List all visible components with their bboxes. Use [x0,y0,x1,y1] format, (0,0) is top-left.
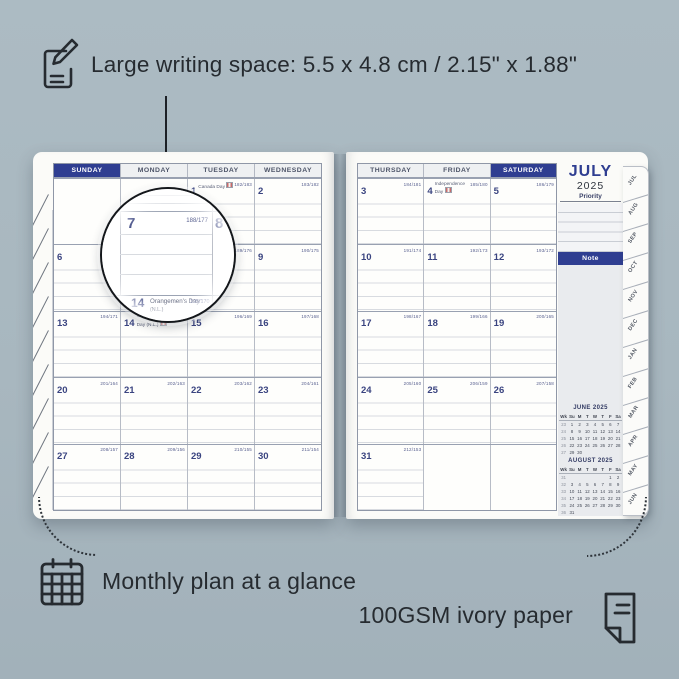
weekday-header: TUESDAY [188,164,255,177]
weekday-header: SUNDAY [54,164,121,177]
product-image-canvas: { "colors": {"background":"#a8b7bf","nav… [0,0,679,679]
day-cell: 5186/179 [491,179,556,244]
weekday-header: FRIDAY [424,164,490,177]
day-cell: 4Independence Day185/180 [424,179,490,244]
feature-text-monthly-plan: Monthly plan at a glance [102,568,356,595]
priority-label: Priority [560,193,621,202]
priority-ruled-lines [558,203,623,253]
day-cell: 3184/181 [358,179,424,244]
day-cell: 13194/171 [54,312,121,377]
magnified-holiday-note: (N.L.) [150,307,163,313]
day-cell: 20201/164 [54,378,121,443]
sidebar-month-title: JULY [558,163,623,181]
day-cell: 22203/162 [188,378,255,443]
sidebar-year: 2025 [558,180,623,192]
day-cell: 12193/172 [491,245,556,310]
pencil-note-icon [39,35,79,91]
planner-sidebar: JULY 2025 Priority Note JUNE 2025WkSuMTW… [558,163,623,516]
day-cell: 29210/155 [188,445,255,510]
magnified-day-of-year: 188/177 [164,218,208,224]
day-cell: 26207/158 [491,378,556,443]
weekday-header: WEDNESDAY [255,164,321,177]
day-cell: 24205/160 [358,378,424,443]
day-cell: 10191/174 [358,245,424,310]
holiday-label: Canada Day [198,181,233,191]
day-cell: 18199/166 [424,312,490,377]
notebook-spine [334,154,346,517]
day-cell: 17198/167 [358,312,424,377]
weekday-header: MONDAY [121,164,188,177]
magnified-day-number: 7 [127,215,135,232]
day-cell: 16197/168 [255,312,321,377]
day-cell: 9190/175 [255,245,321,310]
day-cell: 28209/156 [121,445,188,510]
weekday-header: SATURDAY [491,164,556,177]
calendar-grid-icon [39,557,85,607]
flag-icon [445,187,452,193]
planner-right-page: THURSDAYFRIDAYSATURDAY3184/1814Independe… [346,152,648,519]
feature-text-writing-space: Large writing space: 5.5 x 4.8 cm / 2.15… [91,52,577,78]
paper-sheet-icon [596,590,638,646]
note-banner: Note [558,252,623,265]
month-tab-strip: JULAUGSEPOCTNOVDECJANFEBMARAPRMAYJUN [623,166,649,516]
day-cell [424,445,490,510]
magnifier-circle: 7 188/177 8 14 Orangemen's Day (N.L.) 19… [100,187,236,323]
day-cell: 2183/182 [255,179,321,244]
day-cell: 19200/165 [491,312,556,377]
day-cell: 21202/163 [121,378,188,443]
day-cell [491,445,556,510]
mini-calendar-june: JUNE 2025WkSuMTWTFSa23123456724891011121… [558,405,623,456]
magnified-below-day-of-year: 195/170 [190,299,210,305]
day-cell: 11192/173 [424,245,490,310]
day-cell: 23204/161 [255,378,321,443]
magnified-below-day-number: 14 [131,296,144,310]
weekday-header: THURSDAY [358,164,424,177]
day-cell: 25206/159 [424,378,490,443]
calendar-grid-right: THURSDAYFRIDAYSATURDAY3184/1814Independe… [357,163,557,511]
magnified-next-day-number: 8 [215,215,223,232]
flag-icon [226,182,233,188]
holiday-label: Independence Day [435,181,471,197]
feature-text-paper: 100GSM ivory paper [358,602,573,629]
day-cell: 31212/153 [358,445,424,510]
day-cell: 15196/169 [188,312,255,377]
month-tab-jul: JUL [623,167,648,196]
day-cell: 30211/154 [255,445,321,510]
